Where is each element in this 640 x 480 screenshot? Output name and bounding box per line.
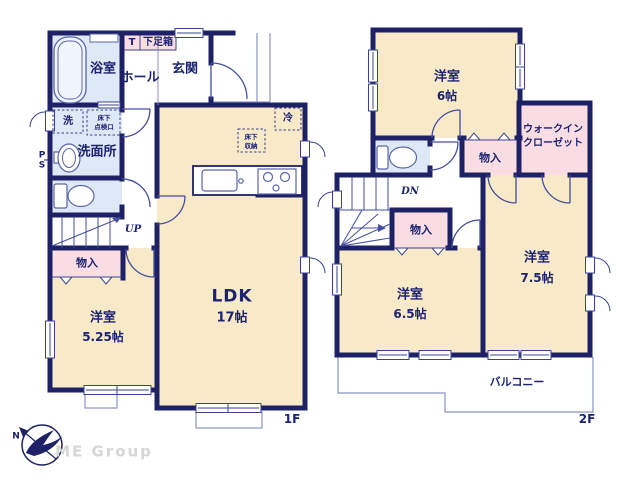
toilet-icon-2f	[377, 146, 417, 169]
size-label-westroom525: 5.25帖	[82, 331, 124, 343]
front-door-arc	[211, 63, 247, 99]
toilet2f-door-arc	[430, 142, 458, 170]
room-label-entrance: 玄関	[172, 63, 198, 76]
label-ps-s: S	[39, 162, 45, 171]
floorplan-page: 浴室 ホール 玄関 T 下足箱 洗 床下 点検口 洗面所 P S UP 物入 洋…	[0, 0, 640, 480]
label-closet-1f: 物入	[76, 258, 98, 269]
window-westroom6-right-upper	[516, 44, 525, 67]
bathtub-icon	[54, 37, 86, 103]
label-underfloor-hatch-2: 点検口	[94, 124, 114, 131]
label-compass-north: N	[12, 433, 20, 442]
casement-window-washroom	[30, 111, 55, 131]
casement-window-ldk-right-upper	[301, 141, 326, 157]
size-label-ldk: 17帖	[216, 312, 247, 325]
room-label-ldk: LDK	[211, 289, 252, 306]
label-washer: 洗	[63, 117, 73, 127]
casement-window-ldk-right-lower	[301, 257, 326, 273]
label-shoebox: 下足箱	[143, 38, 173, 48]
casement-window-westroom75-upper	[586, 257, 611, 273]
label-stairs-down: DN	[401, 187, 419, 197]
label-ps-p: P	[39, 152, 46, 161]
floor-label-1f: 1F	[284, 413, 301, 425]
balcony-outline	[338, 357, 593, 412]
label-balcony: バルコニー	[490, 377, 545, 388]
step-ldk	[196, 412, 262, 428]
room-label-westroom525: 洋室	[90, 312, 116, 325]
window-westroom6-left-lower	[369, 84, 378, 111]
label-closet-2f-upper: 物入	[479, 153, 501, 164]
label-stairs-up: UP	[125, 225, 141, 235]
window-westroom6-right-lower	[516, 67, 525, 89]
window-ldk-bottom	[196, 404, 261, 413]
label-underfloor-hatch-1: 床下	[98, 115, 111, 122]
label-underfloor-storage-2: 収納	[245, 143, 258, 150]
toilet-icon-1f	[54, 184, 94, 208]
window-westroom525-bottom	[84, 386, 151, 395]
kitchen-counter-icon	[193, 166, 302, 195]
size-label-westroom75: 7.5帖	[520, 272, 553, 284]
room-label-wic-1: ウォークイン	[523, 125, 583, 135]
label-fridge: 冷	[283, 114, 293, 124]
casement-window-stairs2f	[318, 191, 342, 208]
window-westroom6-left-upper	[369, 50, 378, 82]
stairs-2f	[337, 177, 390, 246]
size-label-westroom6: 6帖	[437, 90, 457, 102]
casement-window-westroom75-lower	[586, 295, 611, 311]
window-westroom75-balcony	[488, 351, 551, 360]
stairs-1f	[52, 217, 121, 248]
entrance-porch-outline	[211, 33, 270, 102]
toilet1f-door-arc	[122, 179, 150, 207]
washroom-door-arc	[122, 109, 150, 137]
room-label-bathroom: 浴室	[90, 63, 116, 76]
sliding-door-bathroom	[98, 102, 120, 108]
room-label-wic-2: クローゼット	[523, 139, 583, 149]
room-label-westroom75: 洋室	[524, 252, 550, 265]
room-label-washroom: 洗面所	[77, 146, 116, 159]
window-westroom65-left	[333, 264, 342, 295]
room-label-hall: ホール	[120, 72, 159, 85]
window-entrance-top	[175, 29, 203, 38]
size-label-westroom65: 6.5帖	[393, 308, 426, 320]
bath-counter-icon	[90, 34, 118, 42]
ldk-area	[157, 105, 305, 408]
room-label-westroom6: 洋室	[434, 71, 460, 84]
room-label-westroom65: 洋室	[397, 289, 423, 302]
floor1-room-fills	[50, 33, 305, 408]
floor-label-2f: 2F	[579, 413, 596, 425]
company-logo-text: ME Group	[55, 445, 153, 460]
label-closet-2f-lower: 物入	[410, 225, 432, 236]
westroom65-door-arc	[452, 220, 480, 248]
window-westroom525-left	[46, 321, 55, 358]
label-underfloor-storage-1: 床下	[245, 134, 258, 141]
label-toilet-t: T	[129, 38, 136, 48]
